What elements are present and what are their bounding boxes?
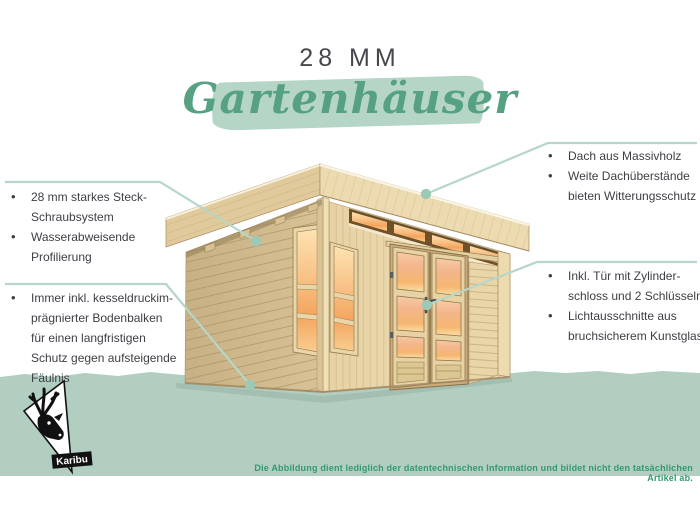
corner-trim bbox=[323, 197, 329, 392]
callout-left-top: 28 mm starkes Steck- Schraubsystem Wasse… bbox=[8, 187, 193, 267]
bullet-item: Immer inkl. kesseldruckim- prägnierter B… bbox=[8, 288, 198, 388]
bullet-item: Dach aus Massivholz bbox=[545, 146, 700, 166]
bullet-item: Weite Dachüberstände bieten Witterungssc… bbox=[545, 166, 700, 206]
door-hinge-icon bbox=[390, 332, 394, 338]
bullet-item: Inkl. Tür mit Zylinder- schloss und 2 Sc… bbox=[545, 266, 700, 306]
door-hinge-icon bbox=[390, 272, 394, 278]
callout-dot-wall bbox=[251, 236, 261, 246]
title-script: Gartenhäuser bbox=[0, 76, 700, 122]
garden-house-illustration bbox=[166, 164, 529, 403]
callout-right-top: Dach aus Massivholz Weite Dachüberstände… bbox=[545, 146, 700, 206]
callout-dot-base bbox=[245, 380, 255, 390]
right-wall-section bbox=[469, 251, 510, 384]
callout-dot-roof bbox=[421, 189, 431, 199]
disclaimer-text: Die Abbildung dient lediglich der datent… bbox=[243, 463, 693, 483]
title-size: 28 MM bbox=[0, 44, 700, 73]
bullet-item: Lichtausschnitte aus bruchsicherem Kunst… bbox=[545, 306, 700, 346]
callout-left-bottom: Immer inkl. kesseldruckim- prägnierter B… bbox=[8, 288, 198, 388]
karibu-logo: Karibu bbox=[12, 374, 108, 478]
double-door bbox=[390, 244, 468, 390]
callout-right-bottom: Inkl. Tür mit Zylinder- schloss und 2 Sc… bbox=[545, 266, 700, 346]
callout-dot-door bbox=[422, 300, 432, 310]
corner-trim bbox=[317, 197, 323, 392]
bullet-item: Wasserabweisende Profilierung bbox=[8, 227, 193, 267]
front-window bbox=[330, 242, 358, 356]
bullet-item: 28 mm starkes Steck- Schraubsystem bbox=[8, 187, 193, 227]
